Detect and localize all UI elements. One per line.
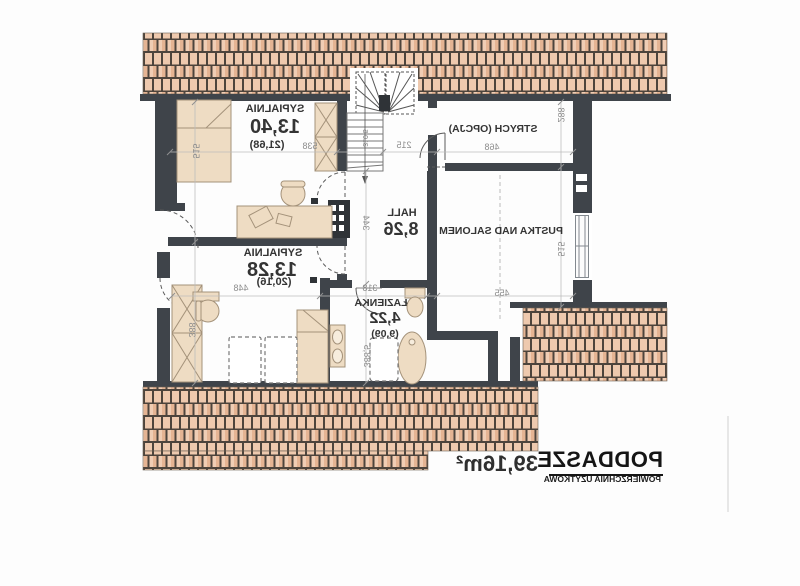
roof-right-patch: [510, 302, 667, 381]
bathroom-name: ŁAZIENKA: [336, 298, 426, 309]
dim-hall-width: 215: [384, 140, 424, 150]
void-name: PUSTKA NAD SALONEM: [436, 226, 566, 237]
dim-void-width: 455: [482, 288, 522, 298]
floor-plan-drawing: [0, 0, 800, 586]
dim-bathroom-width: 318: [350, 283, 390, 293]
dim-stair-run: 310,5: [359, 118, 369, 158]
bedroom1-area: 13,40: [230, 117, 320, 138]
bathroom-area-gross: (9,09): [340, 329, 430, 340]
dim-hall-height: 344: [361, 203, 371, 243]
floor-title: PODDASZE: [549, 447, 663, 476]
dim-void-height: 515: [556, 229, 566, 269]
window-right: [573, 213, 592, 280]
dim-attic-width: 468: [472, 142, 512, 152]
bathroom-area: 4,22: [340, 311, 430, 328]
dim-attic-height: 288: [556, 95, 566, 135]
hall-name: HALL: [362, 208, 442, 220]
sheet-edge-line: [727, 416, 729, 512]
floor-plan-sheet: SYPIALNIA 13,40 (21,68) SYPIALNIA 13,28 …: [0, 0, 800, 586]
dim-bedroom2-width: 448: [221, 283, 261, 293]
dim-bathroom-height: 388,5: [362, 336, 372, 376]
floor-area-value: 39,16m²: [449, 451, 545, 477]
attic-name: STRYCH (OPCJA): [438, 124, 548, 135]
hall-area: 8,26: [361, 220, 441, 239]
dim-bedroom1-width: 538: [290, 141, 330, 151]
bedroom1-name: SYPIALNIA: [230, 104, 320, 116]
staircase: [347, 68, 418, 184]
dim-bedroom1-height: 515: [191, 131, 201, 171]
floor-subtitle: POWIERZCHNIA UŻYTKOWA: [551, 474, 661, 484]
bedroom2-name: SYPIALNIA: [228, 248, 318, 260]
dim-bedroom2-height: 388: [187, 310, 197, 350]
